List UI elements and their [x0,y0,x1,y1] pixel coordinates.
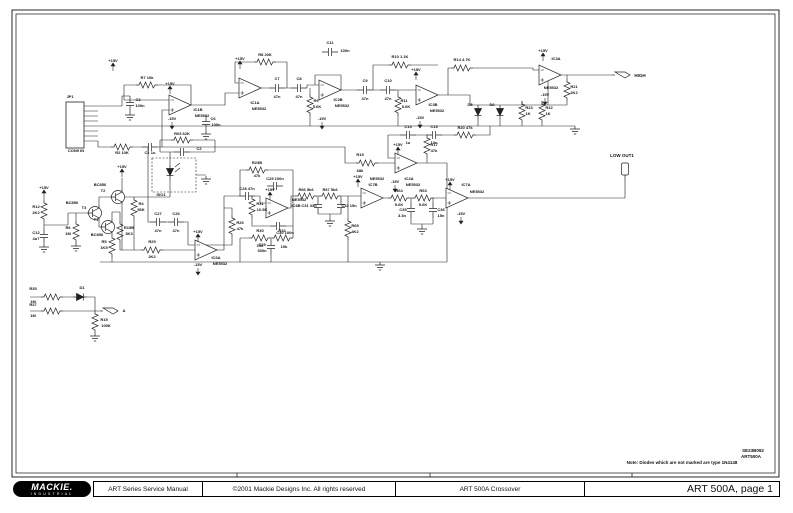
capacitor-C36 [429,202,437,218]
schematic-label: NE5532 [430,108,445,113]
schematic-label: NE5532 [213,261,228,266]
schematic-label: R31 [256,201,264,206]
ground-symbol [71,243,81,251]
power-arrow-down [320,122,324,129]
schematic-label: R2 10K [115,150,129,155]
schematic-label: T2 [101,188,106,193]
schematic-label: 47k [431,148,438,153]
schematic-label: IC7A [461,182,470,187]
power-arrow-up [120,169,124,177]
resistor-R67 [319,193,341,199]
footer-cell-title: ART 500A Crossover [395,481,585,497]
schematic-label: T3 [82,205,87,210]
power-arrow-down [196,268,200,275]
schematic-label: IC7B [368,182,377,187]
schematic-label: R35 [29,286,37,291]
schematic-label: C36 [437,207,445,212]
power-arrow-up [414,72,418,80]
schematic-label: C6 [210,116,216,121]
resistor-R19 [356,160,378,166]
schematic-label: IC6A [211,255,220,260]
resistor-R26 [229,215,235,237]
schematic-label: 47n [362,96,369,101]
power-arrow-down [418,121,422,128]
diode-D1 [73,294,87,301]
schematic-label: C7 [274,76,280,81]
schematic-canvas: JP1CON9 IN+15VC3100nR2 10KC1 1uR7 10k+15… [0,0,793,513]
schematic-label: 47n [173,228,180,233]
schematic-label: NE5532 [470,189,485,194]
schematic-label: R11 [400,98,408,103]
schematic-label: +15V [538,48,548,53]
power-arrow-up [168,86,172,94]
opamp-IC6B [266,198,288,218]
ground-symbol [90,333,100,341]
schematic-label: -15V [194,262,203,267]
capacitor-C13 [426,131,442,139]
resistor-R8 [254,59,276,65]
opamp-IC1B [169,95,191,115]
schematic-label: 100n [340,48,350,53]
resistor-R7 [136,82,158,88]
wire-mid-chain [345,126,625,262]
low-out1-connector [622,163,629,181]
schematic-label: +15V [117,164,127,169]
footer-cell-manual: ART Series Service Manual [93,481,203,497]
power-arrow-up [42,190,46,198]
schematic-label: -15V [318,116,327,121]
schematic-label: 10k [281,244,288,249]
schematic-label: ISO1 [156,192,166,197]
schematic-label: R20 47k [457,125,473,130]
schematic-label: +15V [445,177,455,182]
schematic-label: C13 [430,124,438,129]
schematic-label: -15V [168,116,177,121]
schematic-label: D5 [467,102,473,107]
schematic-label: NE5532 [335,103,350,108]
schematic-label: C10 [384,78,392,83]
schematic-label: C3 [135,97,141,102]
schematic-label: R19 [356,152,364,157]
ground-symbol [325,218,335,226]
capacitor-C14 [400,131,416,139]
ground-symbol [375,262,385,270]
ground-symbol [201,131,211,139]
opamp-IC3A [539,65,561,85]
schematic-label: C26 [172,211,180,216]
schematic-label: 47n [296,94,303,99]
resistor-R20 [454,132,476,138]
schematic-label: NE5532 [406,182,421,187]
schematic-label: R21 [570,84,578,89]
resistor-R12 [41,200,47,222]
schematic-label: C2 [196,146,202,151]
resistor-R64 [388,195,410,201]
schematic-label: -15V [541,92,550,97]
schematic-label: 100n [135,103,145,108]
schematic-label: 56K [137,207,144,212]
ground-symbol [39,244,49,252]
schematic-label: C32 15n [341,203,357,208]
schematic-label: R26 [236,220,244,225]
schematic-label: 330n [257,248,267,253]
schematic-label: NE5532 [544,85,559,90]
schematic-label: R65 [351,223,359,228]
schematic-label: NE5532 [370,176,385,181]
schematic-label: NE5532 [195,113,210,118]
schematic-label: C12 [32,230,40,235]
schematic-label: R22 [545,105,553,110]
schematic-label: D1 [79,285,85,290]
resistor-R31 [249,196,255,218]
resistor-R15 [92,311,98,333]
schematic-label: C35 [399,207,407,212]
schematic-label: R9 [313,98,319,103]
schematic-label: IC1B [193,107,202,112]
capacitor-C10 [380,86,396,94]
resistor-R4 [131,197,137,219]
schematic-label: +15V [353,174,363,179]
schematic-label: D6 [489,102,495,107]
schematic-label: BC856 [94,182,107,187]
schematic-label: C28 47n [239,186,255,191]
opamp-IC2A [395,153,417,173]
schematic-label: 5.6K [419,202,428,207]
wire-mute-cluster [30,96,215,311]
schematic-label: IC3A [551,56,560,61]
schematic-label: -15V [457,211,466,216]
schematic-label: 47k [254,173,261,178]
schematic-label: +15V [165,81,175,86]
schematic-label: 68k [357,168,364,173]
schematic-label: C27 [154,211,162,216]
resistor-R21 [564,79,570,101]
resistor-R30 [249,235,271,241]
mackie-logo: MACKIE. INDUSTRIAL [13,481,91,497]
capacitor-C29 [267,239,275,255]
schematic-label: R32 [278,228,286,233]
schematic-label: R23 [525,105,533,110]
schematic-label: NE5532 [292,197,307,202]
schematic-label: 100n [211,122,221,127]
schematic-label: IC3B [428,102,437,107]
schematic-label: 2K2 [32,210,40,215]
schematic-label: 5.6K [313,104,322,109]
schematic-label: ART500A [741,454,762,459]
schematic-label: R17 [430,142,438,147]
schematic-label: 47n [155,228,162,233]
schematic-label: 47n [274,94,281,99]
mackie-logo-text: MACKIE. [31,483,73,492]
capacitor-C11 [322,48,338,56]
schematic-labels: JP1CON9 IN+15VC3100nR2 10KC1 1uR7 10k+15… [29,40,764,465]
schematic-label: 5.6K [402,104,411,109]
schematic-label: IC2A [404,176,413,181]
power-arrow-up [541,53,545,61]
ground-symbol [570,126,580,134]
ground-symbol [417,226,427,234]
schematic-label: R29 [148,239,156,244]
page-border [12,10,779,477]
schematic-label: C9 [362,78,368,83]
jp1-connector [66,102,84,148]
schematic-label: R67 5k6 [322,187,338,192]
schematic-label: BC856 [91,232,104,237]
capacitor-C27 [150,218,166,226]
capacitor-C28 [239,192,255,200]
resistor-R37 [41,308,63,314]
power-arrow-up [111,63,115,71]
schematic-label: +15V [39,185,49,190]
schematic-label: 100K [101,323,111,328]
opamp-IC1A [239,78,261,98]
schematic-label: +15V [235,56,245,61]
schematic-label: 3K3 [125,231,133,236]
schematic-label: IC2B [333,97,342,102]
schematic-label: R23B [252,160,262,165]
capacitor-C35 [407,202,415,218]
resistor-R32 [271,235,293,241]
schematic-label: +15V [393,142,403,147]
power-arrow-down [459,217,463,224]
diode-D5 [475,105,482,119]
power-arrow-up [356,179,360,187]
resistor-R35 [41,294,63,300]
schematic-label: R03 62K [174,131,190,136]
capacitor-C12 [40,228,48,244]
schematic-label: R5 [101,239,107,244]
resistor-R23 [519,101,525,123]
schematic-label: -15V [416,115,425,120]
schematic-label: 1M [30,313,36,318]
schematic-label: 10.5K [257,207,268,212]
schematic-label: C29 [258,242,266,247]
transistor-T2 [110,189,125,205]
schematic-label: R10 1.1K [392,54,409,59]
schematic-label: IC6B [291,203,300,208]
schematic-label: R14 4.7K [454,57,471,62]
schematic-label: LOW OUT1 [610,153,634,158]
schematic-label: R12 [32,204,40,209]
schematic-label: T1 [94,217,99,222]
resistor-R22 [539,101,545,123]
schematic-label: +15V [193,229,203,234]
footer: MACKIE. INDUSTRIAL ART Series Service Ma… [13,481,780,497]
schematic-label: 1K [545,111,550,116]
schematic-label: JP1 [66,94,74,99]
schematic-label: R7 10k [141,75,155,80]
schematic-label: C11 [326,40,334,45]
schematic-label: R8 20K [258,52,272,57]
opamp-IC7A [446,188,468,208]
resistor-R17 [424,135,430,157]
resistor-R5 [109,235,115,257]
capacitor-C2 [174,148,190,156]
resistor-R63 [412,195,434,201]
footer-cell-copyright: ©2001 Mackie Designs Inc. All rights res… [202,481,396,497]
schematic-label: A [123,308,126,313]
schematic-label: R30 [256,228,264,233]
mackie-logo-subtext: INDUSTRIAL [31,492,74,496]
footer-page-label: ART 500A, page 1 [584,481,780,497]
schematic-label: 4u7 [33,236,41,241]
schematic-label: 1K5 [100,245,108,250]
schematic-label: Note: Diodes which are not marked are ty… [627,460,738,465]
schematic-label: R15 [100,317,108,322]
capacitor-C7 [269,84,285,92]
resistor-R6 [73,221,79,243]
opamp-IC7B [361,188,383,208]
schematic-label: 47k [237,226,244,231]
resistor-R29 [141,247,163,253]
schematic-label: HIGH [634,73,645,78]
capacitor-C9 [357,86,373,94]
power-arrow-down [543,98,547,105]
schematic-label: 1K [525,111,530,116]
mute-output-connector [100,308,118,314]
schematic-label: C1 1u [145,150,156,155]
resistor-R10 [389,62,411,68]
schematic-label: -15V [391,179,400,184]
schematic-label: SE23B092 [742,448,764,453]
schematic-label: 1u [406,140,411,145]
power-arrow-down [170,122,174,129]
diode-D6 [497,105,504,119]
ground-symbol [125,112,135,120]
capacitor-C8 [291,84,307,92]
schematic-label: +15V [108,58,118,63]
schematic-label: R15B [124,225,134,230]
led-arrows [175,163,180,172]
schematic-label: 47n [385,96,392,101]
schematic-label: 3.3n [398,213,407,218]
schematic-label: CON9 IN [68,148,84,153]
high-output-connector [612,72,630,78]
schematic-label: C8 [296,76,302,81]
schematic-label: +15V [411,67,421,72]
schematic-label: C31 33n [301,203,317,208]
schematic-label: R63 [419,188,427,193]
schematic-label: BC856 [66,200,79,205]
schematic-label: R37 [29,302,37,307]
iso1-led [167,165,174,179]
resistor-R65 [345,218,351,240]
capacitor-C3 [126,96,134,112]
schematic-label: 1M [65,231,71,236]
schematic-label: IC1A [250,100,259,105]
schematic-label: 2K2 [570,90,578,95]
resistor-R03 [171,137,193,143]
schematic-label: C14 [404,124,412,129]
schematic-label: C25 100n [266,176,284,181]
schematic-label: +15V [265,187,275,192]
resistor-R14 [451,65,473,71]
schematic-label: R66 5k6 [298,187,314,192]
schematic-page: JP1CON9 IN+15VC3100nR2 10KC1 1uR7 10k+15… [0,0,793,513]
iso1-box [152,158,196,192]
schematic-label: R64 [395,188,403,193]
schematic-label: R6 [65,225,71,230]
schematic-label: 15n [438,213,445,218]
schematic-label: NE5532 [252,106,267,111]
schematic-label: R4 [138,201,144,206]
schematic-label: 2K2 [148,254,156,259]
ground-symbol [201,176,211,184]
schematic-label: 4K2 [351,229,359,234]
capacitor-C26 [168,218,184,226]
